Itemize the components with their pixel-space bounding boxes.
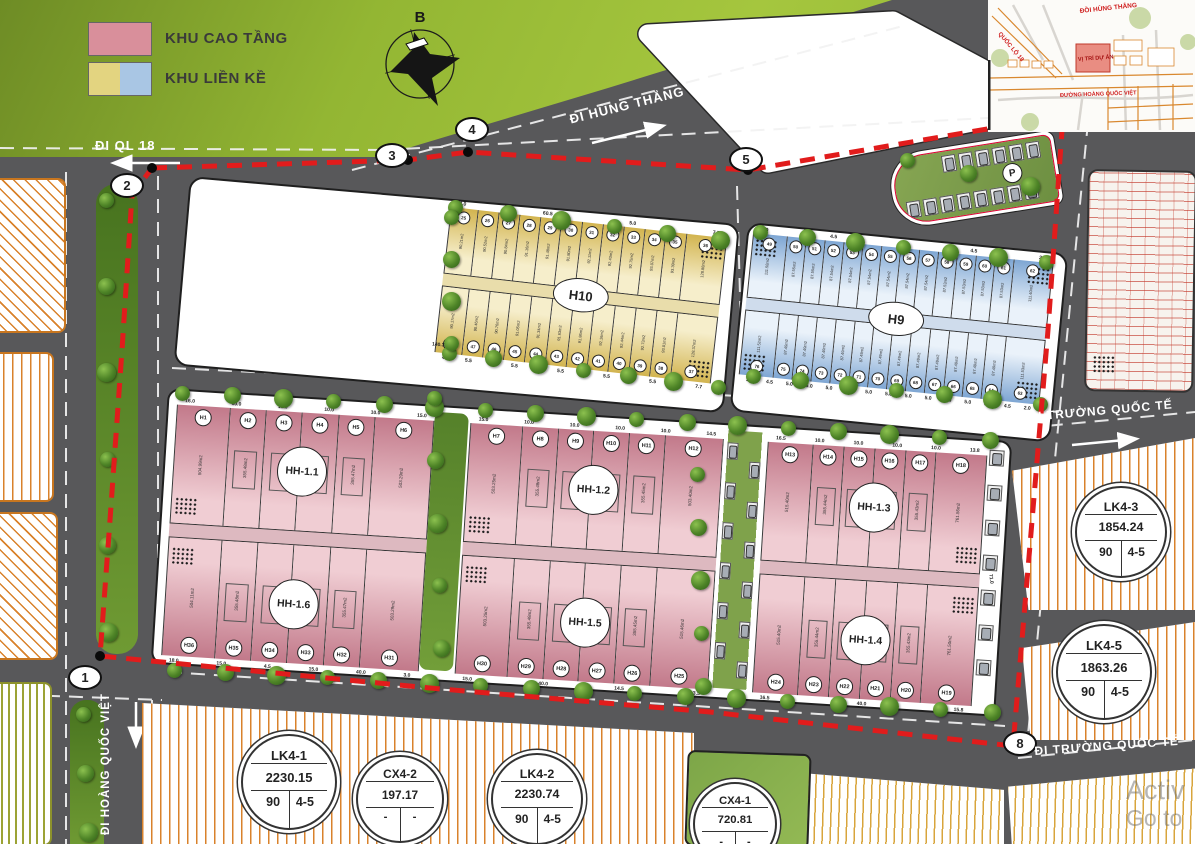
activation-watermark: Activ Go to xyxy=(1126,776,1185,831)
boundary-node-3: 3 xyxy=(375,143,409,168)
inset-frame-edge xyxy=(988,60,991,130)
road-label-ql18: ĐI QL 18 xyxy=(95,138,156,153)
location-inset-map: ĐỒI HÙNG THẮNG QUỐC LỘ 18 VỊ TRÍ DỰ ÁN Đ… xyxy=(988,0,1195,132)
boundary-node-4: 4 xyxy=(455,117,489,142)
road-label-hoang-quoc-viet: ĐI HOÀNG QUỐC VIỆT xyxy=(100,675,112,835)
watermark-line2: Go to xyxy=(1126,806,1185,831)
watermark-line1: Activ xyxy=(1126,776,1185,806)
inset-label-doi-hung-thang: ĐỒI HÙNG THẮNG xyxy=(1079,0,1137,15)
master-plan-map: KHU CAO TẦNG KHU LIỀN KỀ B P H10 4.060.5… xyxy=(0,0,1195,844)
boundary-node-8: 8 xyxy=(1003,731,1037,756)
boundary-node-5: 5 xyxy=(729,147,763,172)
boundary-node-1: 1 xyxy=(68,665,102,690)
boundary-node-2: 2 xyxy=(110,173,144,198)
boundary-dots xyxy=(95,147,1018,751)
red-dashed-boundary xyxy=(100,116,1063,746)
